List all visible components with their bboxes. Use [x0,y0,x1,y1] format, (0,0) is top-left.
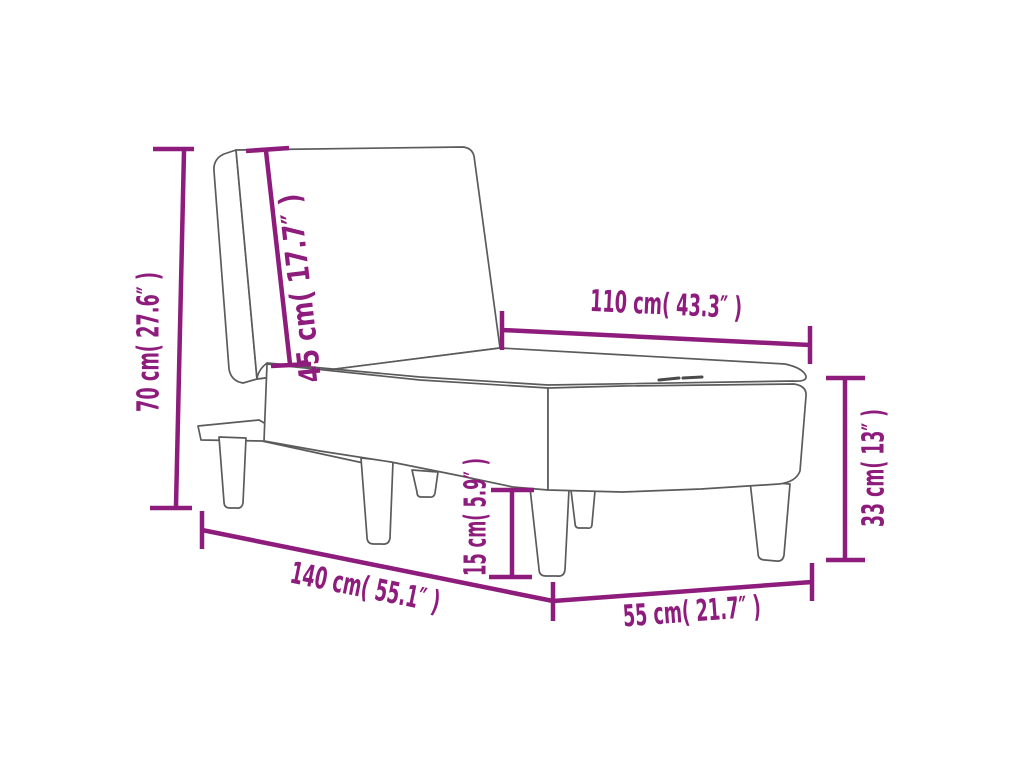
dimension-seat-height: 33 cm( 13″ ) [826,378,892,560]
right-leg [750,481,790,561]
dimension-label: 33 cm( 13″ ) [857,409,892,527]
back-small-leg [412,470,438,497]
front-small-leg [571,490,595,528]
rail-leg [219,437,246,508]
middle-leg [361,458,393,544]
dimension-diagram: 70 cm( 27.6″ ) 45 cm( 17.7″ ) 110 cm( 43… [0,0,1024,768]
dimension-label: 70 cm( 27.6″ ) [132,272,167,412]
dimension-diagram-canvas: 70 cm( 27.6″ ) 45 cm( 17.7″ ) 110 cm( 43… [0,0,1024,768]
front-leg [530,488,569,576]
dimension-label: 15 cm( 5.9″ ) [459,458,494,576]
dimension-line [489,490,534,577]
seat-foot-panel [548,384,806,492]
dimension-total-width: 55 cm( 21.7″ ) [553,563,812,635]
backrest-front-panel [236,147,500,379]
dimension-total-height: 70 cm( 27.6″ ) [132,149,195,508]
dimension-label: 110 cm( 43.3″ ) [589,284,742,326]
dimension-label: 140 cm( 55.1″ ) [287,556,443,620]
